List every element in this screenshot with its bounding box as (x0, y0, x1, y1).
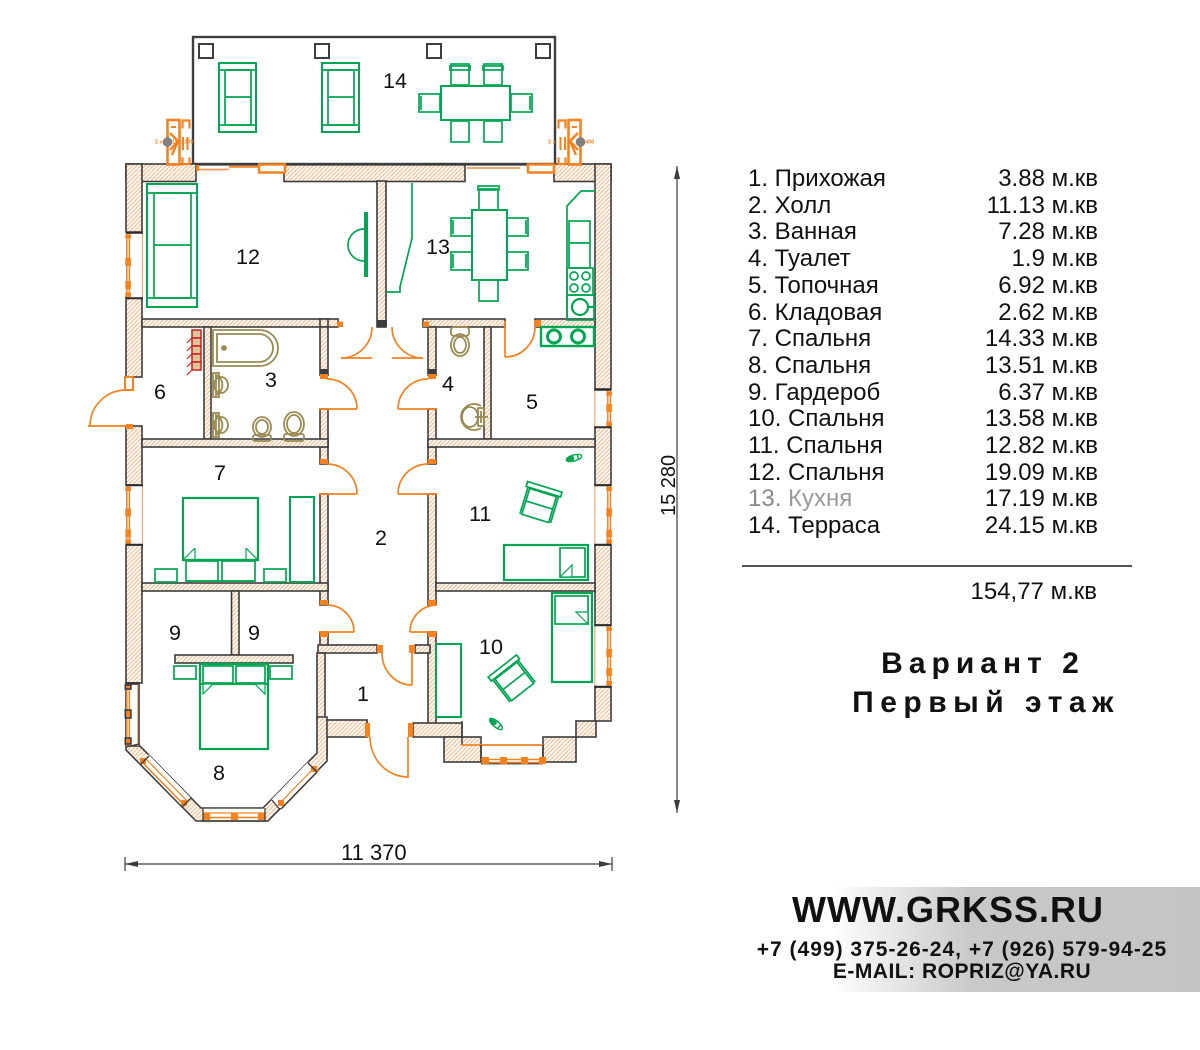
svg-text:400: 400 (585, 140, 594, 146)
svg-text:150x300: 150x300 (172, 140, 193, 146)
svg-text:11 370: 11 370 (341, 840, 407, 865)
svg-text:14: 14 (383, 69, 407, 93)
svg-text:6: 6 (154, 380, 166, 404)
svg-text:12: 12 (236, 245, 260, 269)
svg-text:9: 9 (169, 621, 181, 645)
svg-text:9: 9 (248, 621, 260, 645)
svg-text:3: 3 (265, 368, 277, 392)
svg-text:11: 11 (469, 502, 491, 526)
svg-text:1: 1 (357, 682, 369, 706)
svg-text:2 x: 2 x (155, 140, 164, 146)
svg-text:2 x: 2 x (548, 140, 557, 146)
svg-text:15 280: 15 280 (658, 455, 680, 516)
svg-text:5: 5 (526, 390, 538, 414)
svg-text:7: 7 (214, 461, 226, 485)
svg-text:2: 2 (375, 526, 387, 550)
svg-text:13: 13 (426, 235, 450, 259)
svg-text:8: 8 (213, 761, 225, 785)
svg-text:4: 4 (442, 372, 454, 396)
svg-text:10: 10 (479, 635, 503, 659)
